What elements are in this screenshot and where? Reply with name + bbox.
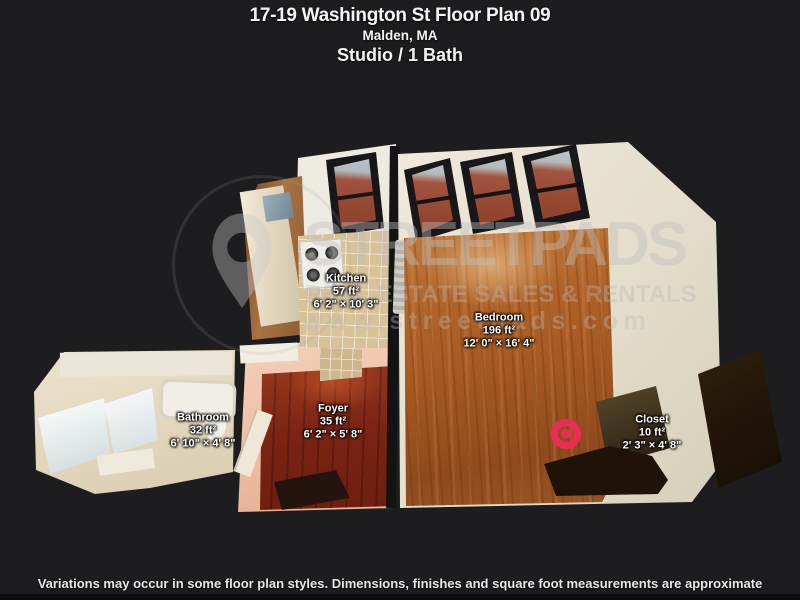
- room-label-bathroom: Bathroom 32 ft² 6' 10" × 4' 8": [171, 412, 236, 451]
- room-name: Closet: [623, 414, 682, 427]
- room-label-bedroom: Bedroom 196 ft² 12' 0" × 16' 4": [463, 312, 534, 351]
- room-dimensions: 6' 10" × 4' 8": [171, 438, 236, 451]
- room-name: Bathroom: [171, 412, 236, 425]
- room-name: Kitchen: [314, 273, 379, 286]
- bullseye-marker-icon: [551, 419, 581, 449]
- location-subtitle: Malden, MA: [0, 27, 800, 44]
- room-name: Foyer: [304, 403, 363, 416]
- bullseye-marker-dot: [561, 429, 571, 439]
- room-dimensions: 6' 2" × 5' 8": [304, 429, 363, 442]
- bathroom-wall: [60, 351, 232, 377]
- room-dimensions: 12' 0" × 16' 4": [463, 338, 534, 351]
- room-area: 35 ft²: [304, 416, 363, 429]
- room-area: 57 ft²: [314, 286, 379, 299]
- bottom-edge: [0, 594, 800, 600]
- room-area: 32 ft²: [171, 425, 236, 438]
- footer-disclaimer: Variations may occur in some floor plan …: [0, 576, 800, 591]
- room-name: Bedroom: [463, 312, 534, 325]
- room-dimensions: 6' 2" × 10' 3": [314, 299, 379, 312]
- page-title: 17-19 Washington St Floor Plan 09: [0, 4, 800, 27]
- stove-burner: [305, 247, 319, 261]
- room-area: 196 ft²: [463, 325, 534, 338]
- room-area: 10 ft²: [623, 427, 682, 440]
- stove-burner: [325, 246, 339, 260]
- kitchen-sink: [262, 192, 294, 222]
- room-label-kitchen: Kitchen 57 ft² 6' 2" × 10' 3": [314, 273, 379, 312]
- room-label-closet: Closet 10 ft² 2' 3" × 4' 8": [623, 414, 682, 453]
- room-label-foyer: Foyer 35 ft² 6' 2" × 5' 8": [304, 403, 363, 442]
- room-dimensions: 2' 3" × 4' 8": [623, 440, 682, 453]
- unit-type: Studio / 1 Bath: [0, 44, 800, 66]
- foyer-door-header: [240, 342, 299, 363]
- header: 17-19 Washington St Floor Plan 09 Malden…: [0, 4, 800, 66]
